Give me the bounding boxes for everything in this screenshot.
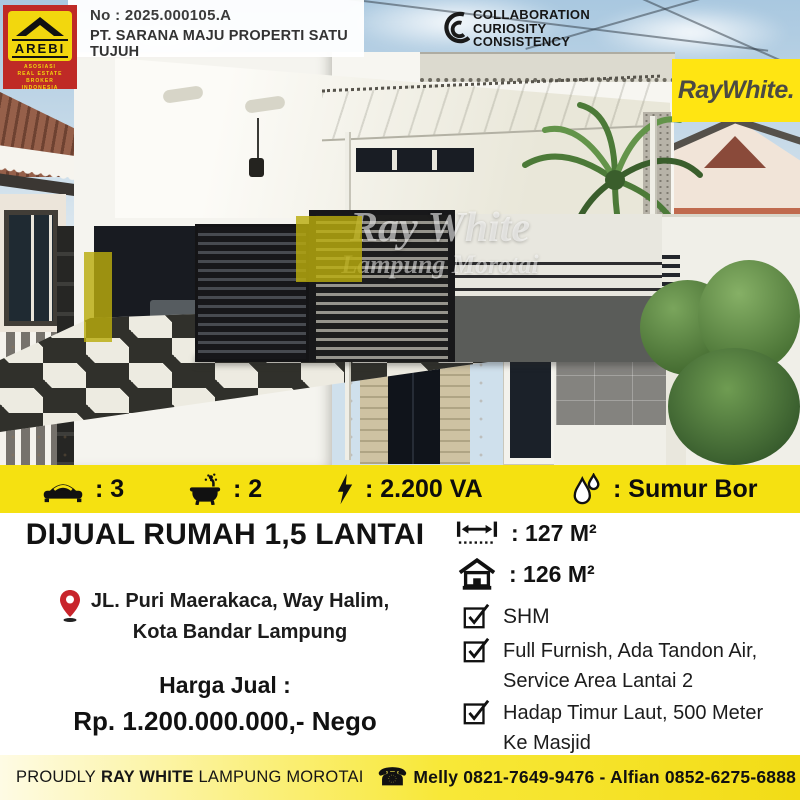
address-line2: Kota Bandar Lampung bbox=[82, 617, 398, 648]
checkbox-checked-icon bbox=[462, 636, 490, 664]
price-value: Rp. 1.200.000.000,- Nego bbox=[20, 706, 430, 737]
footer-bar: PROUDLY RAY WHITE LAMPUNG MOROTAI ☎ Mell… bbox=[0, 755, 800, 800]
license-band: No : 2025.000105.A PT. SARANA MAJU PROPE… bbox=[68, 0, 364, 57]
checkbox-checked-icon bbox=[462, 698, 490, 726]
checklist-item-direction: Hadap Timur Laut, 500 Meter Ke Masjid bbox=[462, 698, 773, 758]
yellow-overlay-box bbox=[84, 252, 112, 342]
arebi-roof-icon bbox=[12, 14, 68, 38]
checklist-item-shm: SHM bbox=[462, 602, 773, 632]
value-consistency: CONSISTENCY bbox=[473, 35, 590, 49]
feature-water: : Sumur Bor bbox=[572, 465, 757, 513]
raywhite-wordmark: RayWhite. bbox=[678, 76, 794, 105]
company-values: COLLABORATION CURIOSITY CONSISTENCY bbox=[436, 8, 590, 50]
bathroom-count: : 2 bbox=[233, 475, 262, 504]
arebi-badge: AREBI ASOSIASI REAL ESTATE BROKER INDONE… bbox=[3, 5, 77, 89]
land-area-row: : 127 M² bbox=[456, 520, 597, 547]
checklist-text: Hadap Timur Laut, 500 Meter Ke Masjid bbox=[503, 698, 773, 758]
double-c-icon bbox=[436, 8, 470, 50]
garden-shrubs bbox=[640, 260, 800, 465]
water-drop-icon bbox=[572, 473, 602, 505]
feature-bedrooms: : 3 bbox=[42, 465, 124, 513]
checklist-text: Full Furnish, Ada Tandon Air, Service Ar… bbox=[503, 636, 773, 696]
bedroom-count: : 3 bbox=[95, 475, 124, 504]
footer-office: LAMPUNG MOROTAI bbox=[199, 768, 364, 787]
building-area: : 126 M² bbox=[509, 561, 595, 588]
power-value: : 2.200 VA bbox=[365, 475, 483, 504]
arebi-logo: AREBI bbox=[8, 11, 72, 61]
checklist-item-furnish: Full Furnish, Ada Tandon Air, Service Ar… bbox=[462, 636, 773, 696]
address: JL. Puri Maerakaca, Way Halim, Kota Band… bbox=[82, 586, 398, 648]
land-width-icon bbox=[456, 520, 498, 547]
pendant-lamp bbox=[257, 118, 259, 160]
value-curiosity: CURIOSITY bbox=[473, 22, 590, 36]
address-row: JL. Puri Maerakaca, Way Halim, Kota Band… bbox=[58, 586, 398, 648]
property-photo: Ray White Lampung Morotai No : 2025.0001… bbox=[0, 0, 800, 465]
features-strip: : 3 : 2 : 2.200 VA bbox=[0, 465, 800, 513]
feature-power: : 2.200 VA bbox=[336, 465, 483, 513]
water-source: : Sumur Bor bbox=[613, 475, 757, 504]
location-pin-icon bbox=[58, 589, 82, 622]
transom-window bbox=[356, 148, 474, 172]
ceiling-light bbox=[244, 95, 285, 113]
bed-icon bbox=[42, 474, 84, 504]
arebi-name: AREBI bbox=[12, 39, 68, 58]
value-collaboration: COLLABORATION bbox=[473, 8, 590, 22]
bath-icon bbox=[188, 473, 222, 505]
ceiling-light bbox=[162, 85, 203, 103]
checklist-text: SHM bbox=[503, 602, 773, 632]
land-area: : 127 M² bbox=[511, 520, 597, 547]
lightning-icon bbox=[336, 473, 354, 505]
raywhite-logo: RayWhite. bbox=[672, 59, 800, 122]
phone-icon: ☎ bbox=[378, 766, 408, 790]
feature-bathrooms: : 2 bbox=[188, 465, 262, 513]
footer-proudly: PROUDLY bbox=[16, 768, 96, 787]
yellow-overlay-box bbox=[296, 216, 362, 282]
footer-brand: RAY WHITE bbox=[101, 768, 194, 787]
price-label: Harga Jual : bbox=[20, 672, 430, 699]
address-line1: JL. Puri Maerakaca, Way Halim, bbox=[82, 586, 398, 617]
building-icon bbox=[458, 558, 496, 591]
checkbox-checked-icon bbox=[462, 602, 490, 630]
flyer-canvas: Ray White Lampung Morotai No : 2025.0001… bbox=[0, 0, 800, 800]
contact-numbers: Melly 0821-7649-9476 - Alfian 0852-6275-… bbox=[413, 767, 796, 788]
building-area-row: : 126 M² bbox=[458, 558, 595, 591]
arebi-subtitle: ASOSIASI REAL ESTATE BROKER INDONESIA bbox=[3, 64, 77, 92]
license-number: No : 2025.000105.A bbox=[90, 7, 364, 24]
company-name: PT. SARANA MAJU PROPERTI SATU TUJUH bbox=[90, 28, 364, 60]
footer-office-line: PROUDLY RAY WHITE LAMPUNG MOROTAI bbox=[16, 768, 364, 787]
listing-title: DIJUAL RUMAH 1,5 LANTAI bbox=[20, 518, 430, 552]
